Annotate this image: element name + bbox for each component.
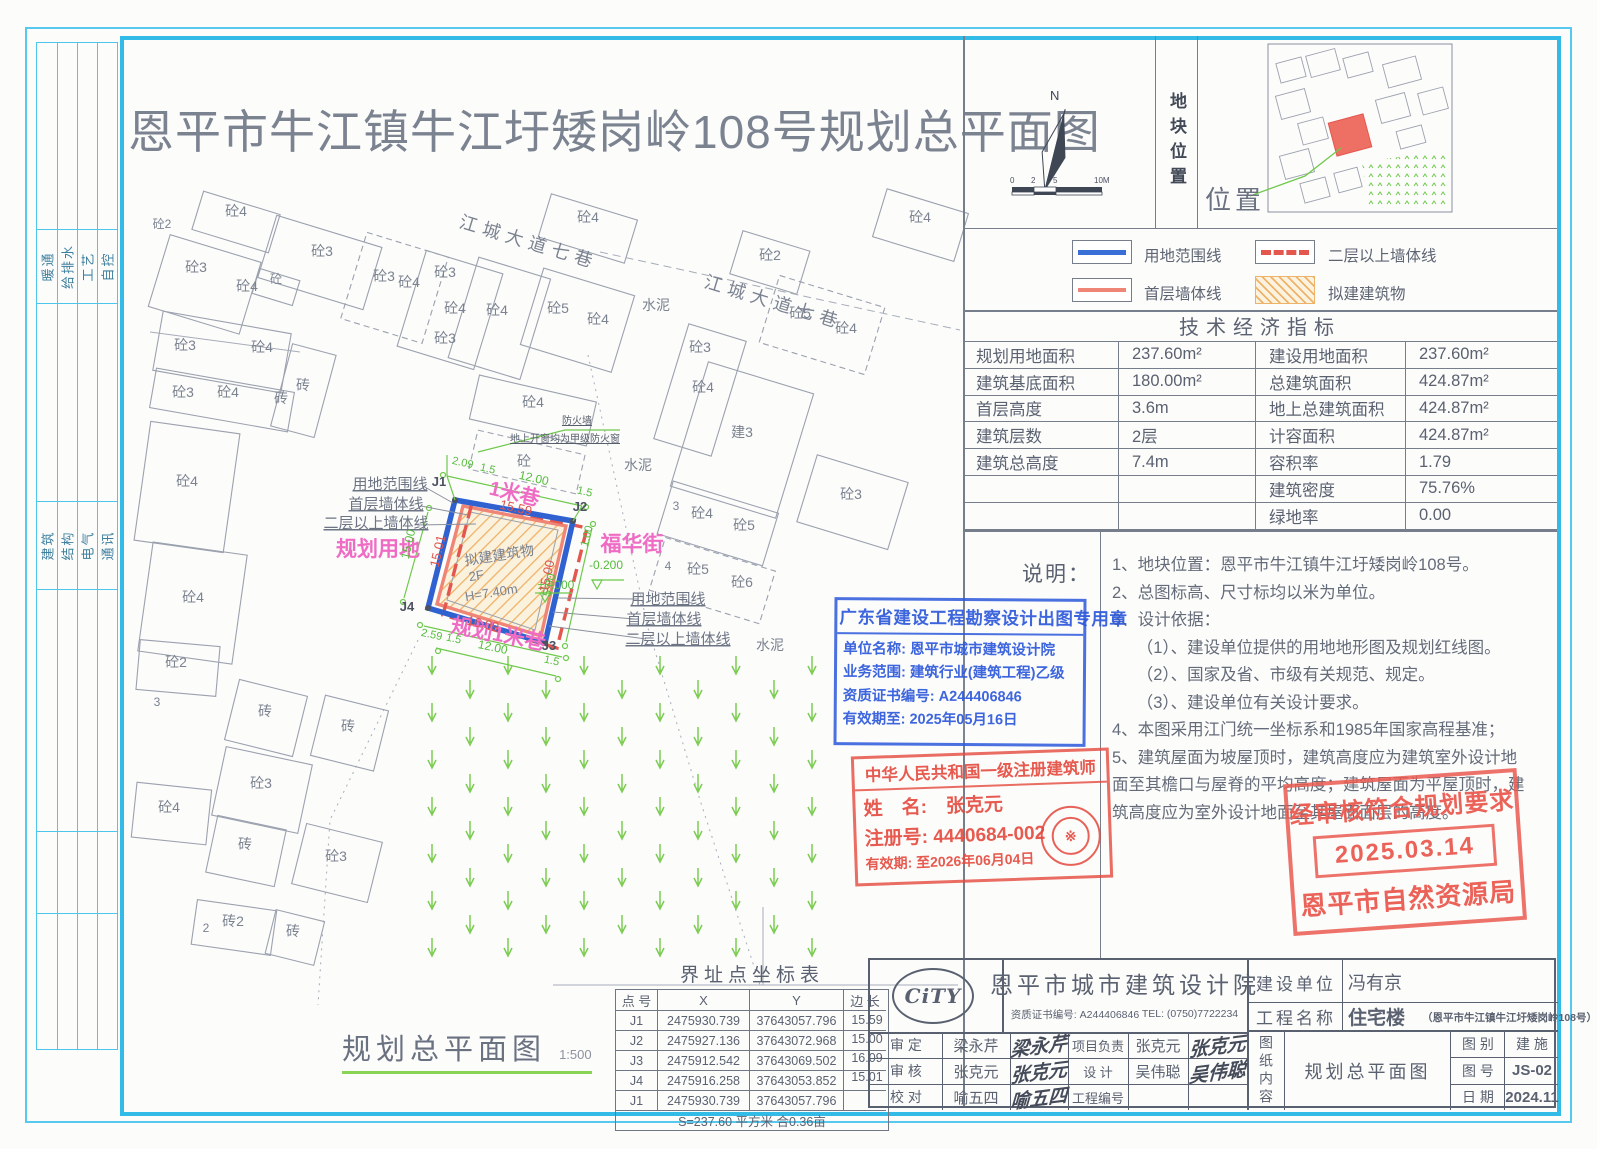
company-credential: 资质证书编号: A244406846 (1010, 1004, 1140, 1024)
grass-arrow-icon (656, 750, 664, 768)
grass-arrow-icon (504, 891, 512, 909)
project-address: （恩平市牛江镇牛江圩矮岗岭108号） (1422, 1006, 1558, 1028)
indicator-cell: 建筑密度 (1255, 476, 1405, 503)
plan-label: 3 (673, 499, 680, 513)
indicator-cell: 3.6m (1118, 396, 1255, 423)
coord-cell: 37643053.852 (750, 1071, 844, 1091)
plan-label: 砼4 (444, 300, 466, 316)
personnel-cell: 张克元 (1128, 1032, 1188, 1058)
sheet-category: 建 施 (1506, 1030, 1558, 1057)
legend: 用地范围线 二层以上墙体线 首层墙体线 拟建建筑物 (1050, 232, 1555, 308)
grass-arrow-icon (732, 844, 740, 862)
plan-label: J4 (400, 599, 415, 614)
notes-label: 说明： (1022, 558, 1091, 588)
grass-arrow-icon (428, 797, 436, 815)
sheet-number: JS-02 (1506, 1057, 1558, 1084)
plan-label: 1.5 (543, 654, 560, 669)
grass-arrow-icon (618, 868, 626, 886)
plan-label: 水泥 (642, 297, 670, 313)
drawing-name: 规划总平面图 1:500 (342, 1026, 592, 1074)
grass-arrow-icon (542, 821, 550, 839)
plan-label: 砼4 (176, 473, 198, 489)
plan-label: J2 (573, 499, 587, 514)
grass-arrow-icon (694, 680, 702, 698)
coord-cell: J1 (616, 1011, 658, 1031)
legend-label-boundary: 用地范围线 (1144, 244, 1222, 266)
personnel-cell (1128, 1084, 1188, 1110)
indicator-row: 绿地率0.00 (963, 503, 1557, 530)
indicator-cell (1118, 503, 1255, 530)
plan-label: 砼5 (733, 517, 755, 533)
plan-label: 砼3 (250, 775, 272, 791)
legend-swatch-boundary (1072, 240, 1132, 264)
indicator-cell: 计容面积 (1255, 422, 1405, 449)
indicator-cell: 2层 (1118, 422, 1255, 449)
plan-label: 1.5 (445, 632, 462, 647)
sheet-content-label: 图纸内容 (1249, 1032, 1283, 1110)
boundary-point-table: 界址点坐标表 点 号X Y边 长 J12475930.73937643057.7… (615, 960, 889, 1131)
indicator-cell: 1.79 (1405, 449, 1557, 476)
scale-tick-0: 0 (1010, 176, 1014, 185)
grass-arrow-icon (542, 727, 550, 745)
title-block: CiTY 恩平市城市建筑设计院 资质证书编号: A244406846 TEL: … (868, 958, 1556, 1108)
plan-label: 砼2 (165, 654, 187, 670)
drawing-name-text: 规划总平面图 (342, 1034, 546, 1066)
plan-label: 江城大道七巷 (702, 272, 846, 333)
plan-label: 用地范围线 (352, 476, 427, 493)
sheet-number-label: 图 号 (1452, 1057, 1504, 1084)
coord-table-title: 界址点坐标表 (615, 960, 889, 987)
indicators-table: 技术经济指标 规划用地面积237.60m²建设用地面积237.60m²建筑基底面… (963, 310, 1557, 530)
grass-arrow-icon (428, 656, 436, 674)
grass-arrow-icon (466, 821, 474, 839)
note-line: 1、地块位置：恩平市牛江镇牛江圩矮岗岭108号。 (1112, 552, 1548, 580)
approval-authority: 恩平市自然资源局 (1299, 871, 1517, 923)
plan-label: 砼4 (587, 311, 609, 327)
personnel-cell: 校 对 (870, 1084, 942, 1110)
grass-arrow-icon (428, 938, 436, 956)
scale-tick-10: 10M (1094, 176, 1110, 185)
grass-arrow-icon (770, 774, 778, 792)
coord-cell: 2475916.258 (658, 1071, 750, 1091)
grass-arrow-icon (694, 727, 702, 745)
plan-label: 砖 (258, 703, 272, 719)
grass-arrow-icon (428, 750, 436, 768)
drawing-sheet: 砼4砼2砼3砼4砼砼3砼3砼4砼3砼4砼3砼4砼5砼4砼4砼2砼5砼4砼4砼3砼… (0, 0, 1597, 1149)
plan-label: 砼 (270, 272, 282, 286)
plan-label: 砼3 (840, 486, 862, 502)
plan-label: 砼4 (691, 505, 713, 521)
plan-label: 2 (203, 921, 210, 935)
coord-cell: 37643057.796 (750, 1091, 844, 1111)
indicator-cell: 建筑层数 (963, 422, 1118, 449)
grass-arrow-icon (618, 821, 626, 839)
grass-arrow-icon (694, 868, 702, 886)
legend-swatch-upper-wall (1255, 240, 1315, 264)
coord-cell: J4 (616, 1071, 658, 1091)
grass-arrow-icon (542, 774, 550, 792)
plan-label: 砼3 (689, 339, 711, 355)
grass-arrow-icon (580, 750, 588, 768)
grass-arrow-icon (580, 938, 588, 956)
plan-label: 砼3 (172, 384, 194, 400)
divider (963, 530, 1557, 532)
coord-cell: 37643069.502 (750, 1051, 844, 1071)
plan-label: 砼 (517, 453, 531, 469)
grass-arrow-icon (770, 868, 778, 886)
coord-table-footer: S=237.60 平方米 合0.36亩 (616, 1111, 888, 1130)
grass-arrow-icon (732, 656, 740, 674)
plan-label: 砼4 (909, 209, 931, 225)
grass-arrow-icon (466, 727, 474, 745)
grass-arrow-icon (580, 797, 588, 815)
plan-label: -0.200 (589, 558, 623, 572)
grass-arrow-icon (580, 703, 588, 721)
indicator-row: 建筑密度75.76% (963, 476, 1557, 503)
plan-label: 砼3 (325, 848, 347, 864)
coord-cell: 2475927.136 (658, 1031, 750, 1051)
seal-line: 业务范围: 建筑行业(建筑工程)乙级 (837, 658, 1083, 683)
column-divider (963, 36, 965, 1108)
coord-cell: 37643057.796 (750, 1011, 844, 1031)
plan-label: 水泥 (624, 457, 652, 473)
personnel-cell: 设 计 (1068, 1058, 1128, 1084)
plan-label: 砼6 (731, 574, 753, 590)
client-name: 冯有京 (1348, 966, 1468, 998)
plan-label: 砼3 (373, 268, 395, 284)
sheet-content: 规划总平面图 (1286, 1032, 1449, 1110)
plan-label: 砼2 (153, 217, 172, 231)
grass-arrow-icon (732, 891, 740, 909)
plan-label: 首层墙体线 (626, 611, 701, 628)
grass-arrow-icon (542, 680, 550, 698)
approval-stamp: 经审核符合规划要求 2025.03.14 恩平市自然资源局 (1283, 768, 1527, 936)
plan-label: 砼3 (174, 337, 196, 353)
plan-label: 砼4 (225, 203, 247, 219)
plan-label: 砼2 (759, 247, 781, 263)
plan-label: J3 (542, 638, 556, 653)
indicator-cell (1118, 476, 1255, 503)
position-label: 位置 (1205, 180, 1265, 217)
plan-label: 砼4 (158, 799, 180, 815)
drawing-scale: 1:500 (559, 1047, 592, 1062)
grass-arrow-icon (466, 868, 474, 886)
plan-label: 砖 (341, 718, 355, 734)
plan-label: 砼4 (577, 209, 599, 225)
grass-arrow-icon (580, 891, 588, 909)
coord-cell: 2475912.542 (658, 1051, 750, 1071)
coord-cell: 2475930.739 (658, 1011, 750, 1031)
grass-arrow-icon (808, 891, 816, 909)
grass-arrow-icon (694, 915, 702, 933)
project-name: 住宅楼 (1348, 1002, 1428, 1030)
location-minimap (1250, 44, 1452, 212)
scale-tick-5: 5 (1053, 176, 1057, 185)
indicator-cell: 424.87m² (1405, 422, 1557, 449)
indicator-cell: 75.76% (1405, 476, 1557, 503)
plan-label: 砖 (286, 923, 300, 939)
indicator-cell: 建筑基底面积 (963, 369, 1118, 396)
grass-arrow-icon (428, 891, 436, 909)
divider (1155, 36, 1156, 228)
plan-label: 砼4 (522, 394, 544, 410)
plan-label: 防火墙 (562, 414, 592, 427)
plan-label: 砼4 (692, 379, 714, 395)
legend-swatch-proposed (1255, 276, 1315, 304)
indicator-cell: 建筑总高度 (963, 449, 1118, 476)
indicator-row: 建筑层数2层计容面积424.87m² (963, 422, 1557, 449)
personnel-cell: 梁永芹 (942, 1032, 1010, 1058)
plan-label: 砖 (296, 377, 310, 393)
indicator-cell: 容积率 (1255, 449, 1405, 476)
plan-label: 砼4 (398, 274, 420, 290)
grass-arrow-icon (732, 797, 740, 815)
plan-label: 建3 (731, 424, 753, 440)
indicator-row: 建筑总高度7.4m容积率1.79 (963, 449, 1557, 476)
legend-label-upper-wall: 二层以上墙体线 (1328, 244, 1437, 266)
personnel-cell: 吴伟聪 (1128, 1058, 1188, 1084)
plan-label: 二层以上墙体线 (323, 515, 428, 532)
grass-arrow-icon (808, 750, 816, 768)
minimap-parcel-highlight (1328, 114, 1372, 156)
grass-arrow-icon (770, 915, 778, 933)
approval-text: 经审核符合规划要求 (1288, 780, 1515, 831)
grass-arrow-icon (466, 774, 474, 792)
grass-arrow-icon (808, 703, 816, 721)
north-label: N (1050, 88, 1059, 103)
plan-label: 1.5 (479, 462, 497, 477)
company-name: 恩平市城市建筑设计院 (1010, 966, 1240, 1000)
legend-swatch-first-wall (1072, 278, 1132, 302)
grass-arrow-icon (428, 844, 436, 862)
grass-arrow-icon (694, 821, 702, 839)
grass-arrow-icon (808, 844, 816, 862)
plan-label: 砼5 (687, 561, 709, 577)
company-logo: CiTY (892, 968, 974, 1024)
grass-arrow-icon (504, 938, 512, 956)
grass-arrow-icon (504, 844, 512, 862)
personnel-cell: 审 核 (870, 1058, 942, 1084)
plot-location-vertical-label: 地块位置 (1164, 92, 1189, 212)
note-line: 5、建筑屋面为坡屋顶时，建筑高度应为建筑室外设计地 (1112, 745, 1548, 773)
note-line: （3）、建设单位有关设计要求。 (1112, 690, 1548, 718)
indicator-row: 首层高度3.6m地上总建筑面积424.87m² (963, 396, 1557, 423)
plan-label: 砼4 (236, 278, 258, 294)
plan-label: 2F (468, 567, 485, 584)
coord-table-header: 点 号X Y边 长 (616, 990, 888, 1011)
design-institute-seal: 广东省建设工程勘察设计出图专用章 单位名称: 恩平市城市建筑设计院 业务范围: … (833, 597, 1086, 747)
plan-label: 3 (154, 695, 161, 709)
divider (1100, 530, 1101, 958)
grass-arrow-icon (732, 938, 740, 956)
grass-arrow-icon (656, 844, 664, 862)
plan-label: 15.01 (427, 533, 449, 568)
personnel-cell: 项目负责 (1068, 1032, 1128, 1058)
indicator-cell: 237.60m² (1118, 342, 1255, 369)
personnel-cell: 审 定 (870, 1032, 942, 1058)
plan-label: 砼5 (547, 300, 569, 316)
divider (963, 228, 1557, 229)
sheet-date: 2024.11 (1506, 1084, 1558, 1110)
plan-label: 砼3 (434, 264, 456, 280)
indicator-cell: 建设用地面积 (1255, 342, 1405, 369)
plan-labels: 砼4砼2砼3砼4砼砼3砼3砼4砼3砼4砼3砼4砼5砼4砼4砼2砼5砼4砼4砼3砼… (153, 203, 931, 939)
approval-date: 2025.03.14 (1313, 824, 1498, 879)
grass-arrow-icon (504, 750, 512, 768)
plan-label: J1 (432, 474, 446, 489)
indicator-cell: 237.60m² (1405, 342, 1557, 369)
legend-label-first-wall: 首层墙体线 (1144, 282, 1222, 304)
personnel-cell: 工程编号 (1068, 1084, 1128, 1110)
note-line: 4、本图采用江门统一坐标系和1985年国家高程基准； (1112, 717, 1548, 745)
coord-cell: J3 (616, 1051, 658, 1071)
plan-label: 砼3 (434, 330, 456, 346)
grass-arrow-icon (466, 680, 474, 698)
grass-arrow-icon (580, 656, 588, 674)
indicator-cell: 0.00 (1405, 503, 1557, 530)
grass-arrow-icon (656, 703, 664, 721)
legend-label-proposed: 拟建建筑物 (1328, 282, 1406, 304)
grass-arrow-icon (504, 797, 512, 815)
indicator-cell: 424.87m² (1405, 396, 1557, 423)
grass-arrow-icon (618, 915, 626, 933)
company-tel: TEL: (0750)7722234 (1135, 1004, 1245, 1024)
indicator-cell: 规划用地面积 (963, 342, 1118, 369)
seal-line: 有效期至: 2025年05月16日 (837, 705, 1083, 730)
grass-arrow-icon (770, 821, 778, 839)
plan-label: 砼4 (217, 384, 239, 400)
grass-arrow-icon (656, 891, 664, 909)
plan-label: 福华街 (600, 532, 664, 556)
grass-arrow-icon (618, 727, 626, 745)
coord-cell: J1 (616, 1091, 658, 1111)
indicator-cell: 首层高度 (963, 396, 1118, 423)
indicator-row: 规划用地面积237.60m²建设用地面积237.60m² (963, 342, 1557, 369)
indicator-cell: 424.87m² (1405, 369, 1557, 396)
plan-label: 用地范围线 (630, 591, 705, 608)
divider (1197, 36, 1198, 228)
note-line: （2）、国家及省、市级有关规范、规定。 (1112, 662, 1548, 690)
note-line: （1）、建设单位提供的用地地形图及规划红线图。 (1112, 635, 1548, 663)
grass-arrow-icon (808, 938, 816, 956)
indicator-cell (963, 476, 1118, 503)
plan-label: 2.09 (451, 455, 475, 472)
plan-label: 地上开窗均为甲级防火窗 (510, 432, 620, 445)
project-label: 工程名称 (1250, 1004, 1342, 1028)
grass-arrow-icon (770, 727, 778, 745)
coord-cell: J2 (616, 1031, 658, 1051)
plan-label: 砼4 (486, 302, 508, 318)
plan-label: 1.5 (576, 485, 594, 500)
grass-arrow-icon (618, 680, 626, 698)
grass-arrow-icon (732, 750, 740, 768)
seal-line: 资质证书编号: A244406846 (837, 681, 1083, 706)
grass-arrow-icon (732, 703, 740, 721)
plan-label: 二层以上墙体线 (625, 631, 730, 648)
plan-label: 砖 (238, 836, 252, 852)
coord-cell: 2475930.739 (658, 1091, 750, 1111)
grass-arrow-icon (466, 915, 474, 933)
grass-arrow-icon (580, 844, 588, 862)
indicator-cell: 地上总建筑面积 (1255, 396, 1405, 423)
grass-arrow-icon (808, 797, 816, 815)
grass-arrow-icon (504, 703, 512, 721)
scale-bar (1012, 187, 1102, 195)
plan-label: 首层墙体线 (348, 496, 423, 513)
grass-arrow-icon (542, 868, 550, 886)
seal-title: 广东省建设工程勘察设计出图专用章 (837, 600, 1083, 636)
indicator-cell: 7.4m (1118, 449, 1255, 476)
note-line: 3、设计依据： (1112, 607, 1548, 635)
sheet-date-label: 日 期 (1452, 1084, 1504, 1110)
personnel-cell: 喻五四 (942, 1084, 1010, 1110)
indicators-title: 技术经济指标 (963, 310, 1557, 342)
grass-arrow-icon (808, 656, 816, 674)
indicator-cell: 180.00m² (1118, 369, 1255, 396)
grass-arrow-icon (656, 656, 664, 674)
coord-cell: 37643072.968 (750, 1031, 844, 1051)
indicator-cell: 总建筑面积 (1255, 369, 1405, 396)
grass-arrow-icon (618, 774, 626, 792)
plan-label: 4 (665, 559, 672, 573)
plan-label: 砼3 (311, 243, 333, 259)
indicator-cell: 绿地率 (1255, 503, 1405, 530)
personnel-cell: 张克元 (942, 1058, 1010, 1084)
plan-label: 砖2 (222, 913, 244, 929)
grass-arrow-icon (428, 703, 436, 721)
seal-line: 单位名称: 恩平市城市建筑设计院 (837, 634, 1083, 659)
vegetation-arrows (428, 656, 816, 956)
indicator-cell (963, 503, 1118, 530)
grass-arrow-icon (656, 797, 664, 815)
plan-label: 砼4 (251, 339, 273, 355)
plan-label: 砼3 (185, 259, 207, 275)
grass-arrow-icon (770, 680, 778, 698)
sheet-category-label: 图 别 (1452, 1030, 1504, 1057)
note-line: 2、总图标高、尺寸标均以米为单位。 (1112, 580, 1548, 608)
plan-label: 水泥 (756, 637, 784, 653)
plan-label: 砖 (274, 390, 288, 406)
indicator-row: 建筑基底面积180.00m²总建筑面积424.87m² (963, 369, 1557, 396)
scale-tick-2: 2 (1031, 176, 1035, 185)
client-label: 建设单位 (1250, 966, 1342, 998)
grass-arrow-icon (656, 938, 664, 956)
plan-label: 砼4 (182, 589, 204, 605)
registered-architect-stamp: 中华人民共和国一级注册建筑师 姓 名: 张克元 注册号: 4440684-002… (851, 748, 1113, 887)
grass-arrow-icon (542, 915, 550, 933)
